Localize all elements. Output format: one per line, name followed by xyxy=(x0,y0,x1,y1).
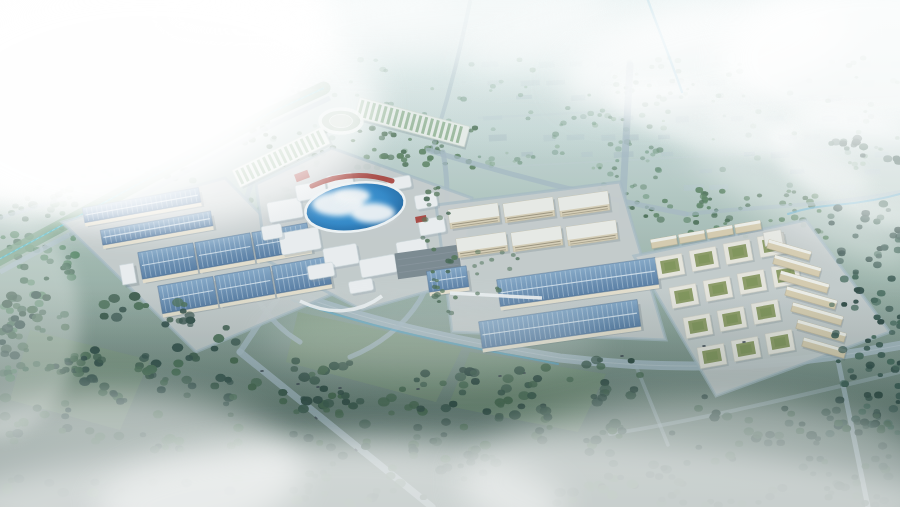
aerial-masterplan-render xyxy=(0,0,900,507)
render-canvas xyxy=(0,0,900,507)
